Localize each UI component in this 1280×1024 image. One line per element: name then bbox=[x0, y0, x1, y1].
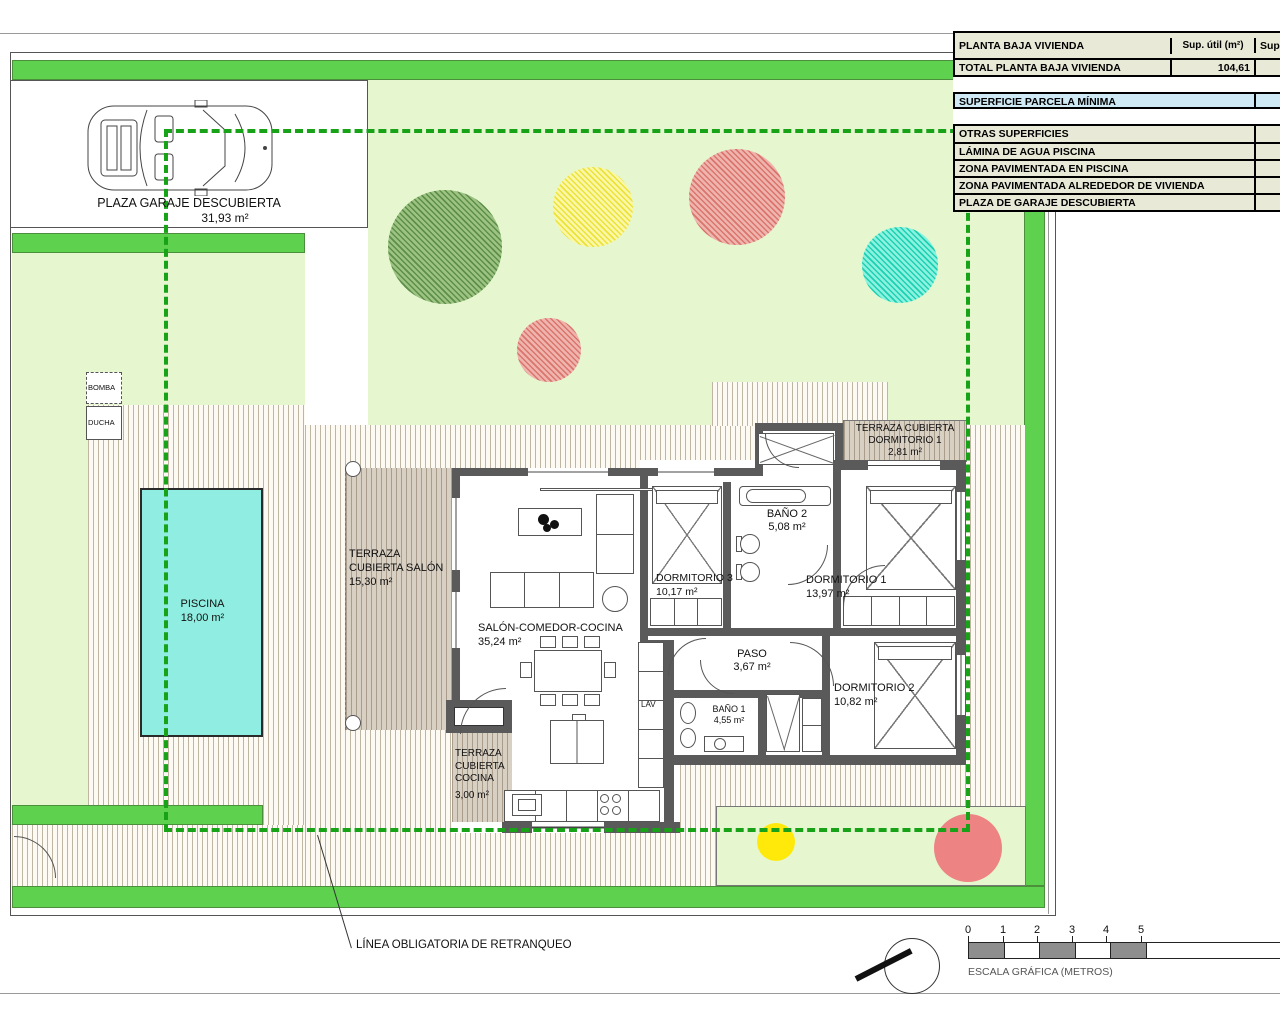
dorm3-area: 10,17 m² bbox=[656, 586, 751, 599]
table-row: ZONA PAVIMENTADA EN PISCINA bbox=[953, 159, 1280, 178]
hedge-strip-top bbox=[12, 60, 1045, 80]
scale-caption: ESCALA GRÁFICA (METROS) bbox=[968, 966, 1188, 979]
hedge-strip-bottom bbox=[12, 886, 1045, 908]
dorm1-label: DORMITORIO 1 bbox=[806, 574, 911, 588]
table-row: LÁMINA DE AGUA PISCINA bbox=[953, 142, 1280, 161]
salon-area: 35,24 m² bbox=[478, 636, 578, 650]
table-total-row: TOTAL PLANTA BAJA VIVIENDA 104,61 bbox=[953, 58, 1280, 77]
table-parcela-label: SUPERFICIE PARCELA MÍNIMA bbox=[955, 94, 1256, 107]
scale-tickmark bbox=[1141, 936, 1142, 943]
table-row-label: LÁMINA DE AGUA PISCINA bbox=[955, 144, 1256, 159]
terraza-salon-area: 15,30 m² bbox=[349, 576, 449, 590]
terraza-dorm1-label: TERRAZA CUBIERTA DORMITORIO 1 bbox=[845, 423, 965, 447]
retranqueo-label: LÍNEA OBLIGATORIA DE RETRANQUEO bbox=[356, 938, 636, 952]
dorm2-area: 10,82 m² bbox=[834, 696, 939, 710]
dorm1-area: 13,97 m² bbox=[806, 588, 911, 602]
setback-line bbox=[164, 129, 970, 832]
lav-label: LAV bbox=[641, 700, 671, 710]
table-parcela-value bbox=[1256, 94, 1280, 107]
table-total-extra bbox=[1256, 60, 1280, 75]
table-row-value bbox=[1256, 178, 1280, 193]
bano2-label: BAÑO 2 bbox=[756, 508, 818, 522]
table-otras-value bbox=[1256, 126, 1280, 142]
terraza-salon-label: TERRAZA CUBIERTA SALÓN bbox=[349, 548, 449, 576]
pool-shower-label: DUCHA bbox=[88, 418, 115, 427]
dorm2-label: DORMITORIO 2 bbox=[834, 682, 939, 696]
scale-tickmark bbox=[968, 936, 969, 943]
scale-tickmark bbox=[1003, 936, 1004, 943]
table-parcela-row: SUPERFICIE PARCELA MÍNIMA bbox=[953, 92, 1280, 109]
table-row-value bbox=[1256, 195, 1280, 210]
table-header-col1: PLANTA BAJA VIVIENDA bbox=[955, 38, 1172, 54]
table-header-col2: Sup. útil (m²) bbox=[1172, 38, 1256, 53]
scale-tickmark bbox=[1106, 936, 1107, 943]
piscina-area: 18,00 m² bbox=[150, 612, 255, 626]
table-row-value bbox=[1256, 161, 1280, 176]
table-total-value: 104,61 bbox=[1172, 60, 1256, 75]
terraza-cocina-area: 3,00 m² bbox=[455, 790, 510, 803]
bano1-area: 4,55 m² bbox=[700, 715, 758, 726]
piscina-label: PISCINA bbox=[150, 598, 255, 612]
floor-plan-sheet: { "title_table": { "header": {"col1": "P… bbox=[0, 0, 1280, 1024]
sheet-bottom-border bbox=[0, 993, 1280, 994]
table-otras-label: OTRAS SUPERFICIES bbox=[955, 126, 1256, 142]
surface-table: PLANTA BAJA VIVIENDA Sup. útil (m²) Sup.… bbox=[953, 33, 1280, 212]
terraza-dorm1-area: 2,81 m² bbox=[845, 447, 965, 460]
table-total-label: TOTAL PLANTA BAJA VIVIENDA bbox=[955, 60, 1172, 75]
table-row-value bbox=[1256, 144, 1280, 159]
table-row: PLAZA DE GARAJE DESCUBIERTA bbox=[953, 193, 1280, 212]
table-row-label: ZONA PAVIMENTADA ALREDEDOR DE VIVIENDA bbox=[955, 178, 1256, 193]
garage-area: 31,93 m² bbox=[60, 211, 390, 226]
paso-label: PASO bbox=[722, 648, 782, 662]
garage-label: PLAZA GARAJE DESCUBIERTA bbox=[10, 196, 368, 212]
table-header-col3: Sup. bbox=[1256, 38, 1280, 54]
table-row: ZONA PAVIMENTADA ALREDEDOR DE VIVIENDA bbox=[953, 176, 1280, 195]
north-arrow-icon bbox=[884, 938, 940, 994]
dorm3-label: DORMITORIO 3 bbox=[656, 572, 751, 585]
pool-shower-box: DUCHA bbox=[86, 406, 122, 440]
table-row-label: PLAZA DE GARAJE DESCUBIERTA bbox=[955, 195, 1256, 210]
table-header-row: PLANTA BAJA VIVIENDA Sup. útil (m²) Sup. bbox=[953, 31, 1280, 60]
salon-label: SALÓN-COMEDOR-COCINA bbox=[478, 622, 648, 636]
table-otras-row: OTRAS SUPERFICIES bbox=[953, 124, 1280, 144]
bano1-label: BAÑO 1 bbox=[700, 704, 758, 715]
pool-pump-label: BOMBA bbox=[88, 383, 115, 392]
scale-tickmark bbox=[1037, 936, 1038, 943]
bano2-area: 5,08 m² bbox=[756, 521, 818, 535]
paso-area: 3,67 m² bbox=[722, 661, 782, 675]
pool-pump-box: BOMBA bbox=[86, 372, 122, 404]
terraza-cocina-label: TERRAZA CUBIERTA COCINA bbox=[455, 748, 510, 786]
scale-tickmark bbox=[1072, 936, 1073, 943]
table-row-label: ZONA PAVIMENTADA EN PISCINA bbox=[955, 161, 1256, 176]
scale-bar bbox=[968, 942, 1280, 959]
